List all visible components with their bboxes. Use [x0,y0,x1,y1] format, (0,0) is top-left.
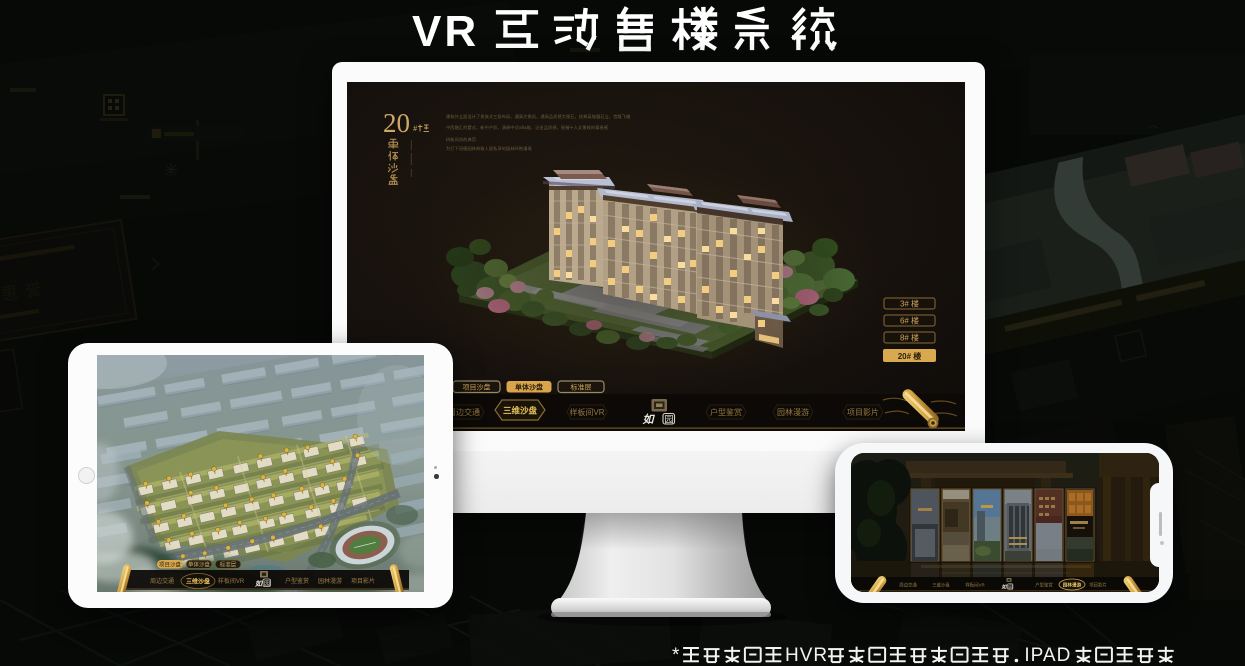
svg-text:IPAD: IPAD [1024,645,1071,666]
svg-text:HVR: HVR [785,645,828,666]
svg-text:*: * [672,645,680,666]
